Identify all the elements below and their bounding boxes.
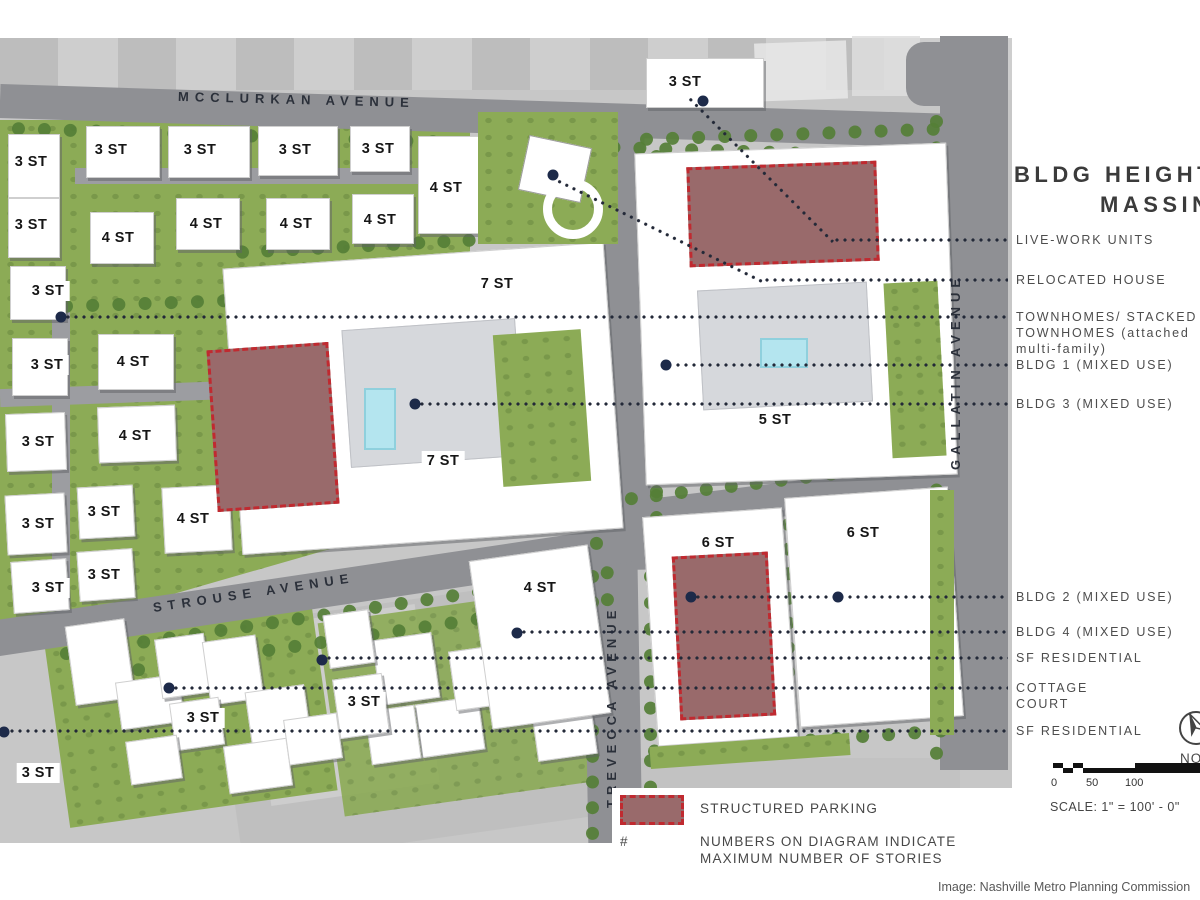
structured-parking-label: STRUCTURED PARKING xyxy=(700,800,878,817)
scale-mid-segment xyxy=(1093,768,1137,773)
legend-item-label: BLDG 1 (MIXED USE) xyxy=(1016,357,1173,373)
legend-item-label: BLDG 4 (MIXED USE) xyxy=(1016,624,1173,640)
legend-item: SF RESIDENTIAL xyxy=(1016,723,1143,739)
legend-item-label: LIVE-WORK UNITS xyxy=(1016,232,1154,248)
legend-item: BLDG 3 (MIXED USE) xyxy=(1016,396,1173,412)
attribution-text: Image: Nashville Metro Planning Commissi… xyxy=(938,880,1190,894)
legend-item-label: SF RESIDENTIAL xyxy=(1016,723,1143,739)
legend-item-label: multi-family) xyxy=(1016,341,1197,357)
scale-tick-0: 0 xyxy=(1051,777,1057,789)
scale-bar: 0 50 100 SCALE: 1" = 100' - 0" xyxy=(1040,758,1200,828)
legend-item: BLDG 4 (MIXED USE) xyxy=(1016,624,1173,640)
legend-item-label: RELOCATED HOUSE xyxy=(1016,272,1166,288)
north-label: NORTH xyxy=(1180,750,1200,767)
site-plan-page: 3 ST3 ST3 ST3 ST3 ST4 ST3 ST4 ST4 ST4 ST… xyxy=(0,0,1200,900)
legend-item: TOWNHOMES/ STACKEDTOWNHOMES (attachedmul… xyxy=(1016,309,1197,357)
legend-item: SF RESIDENTIAL xyxy=(1016,650,1143,666)
scale-checker-bottom xyxy=(1053,768,1093,773)
structured-parking-swatch xyxy=(620,795,684,825)
hash-symbol: # xyxy=(620,833,629,850)
north-arrow-icon xyxy=(1176,708,1200,748)
legend-item-label: TOWNHOMES (attached xyxy=(1016,325,1197,341)
legend-item: COTTAGECOURT xyxy=(1016,680,1088,712)
legend-item: LIVE-WORK UNITS xyxy=(1016,232,1154,248)
legend-item-label: BLDG 2 (MIXED USE) xyxy=(1016,589,1173,605)
legend-item-label: COTTAGE xyxy=(1016,680,1088,696)
legend-item: BLDG 2 (MIXED USE) xyxy=(1016,589,1173,605)
stories-note-line2: MAXIMUM NUMBER OF STORIES xyxy=(700,850,943,867)
north-arrow xyxy=(1176,708,1200,748)
scale-tick-50: 50 xyxy=(1086,777,1098,789)
legend-item-label: BLDG 3 (MIXED USE) xyxy=(1016,396,1173,412)
legend-item: RELOCATED HOUSE xyxy=(1016,272,1166,288)
scale-label: SCALE: 1" = 100' - 0" xyxy=(1050,800,1180,814)
legend-item-label: SF RESIDENTIAL xyxy=(1016,650,1143,666)
legend-item: BLDG 1 (MIXED USE) xyxy=(1016,357,1173,373)
legend-item-label: TOWNHOMES/ STACKED xyxy=(1016,309,1197,325)
legend-items: LIVE-WORK UNITSRELOCATED HOUSETOWNHOMES/… xyxy=(0,0,1200,900)
legend-item-label: COURT xyxy=(1016,696,1088,712)
stories-note-line1: NUMBERS ON DIAGRAM INDICATE xyxy=(700,833,956,850)
scale-tick-100: 100 xyxy=(1125,777,1143,789)
